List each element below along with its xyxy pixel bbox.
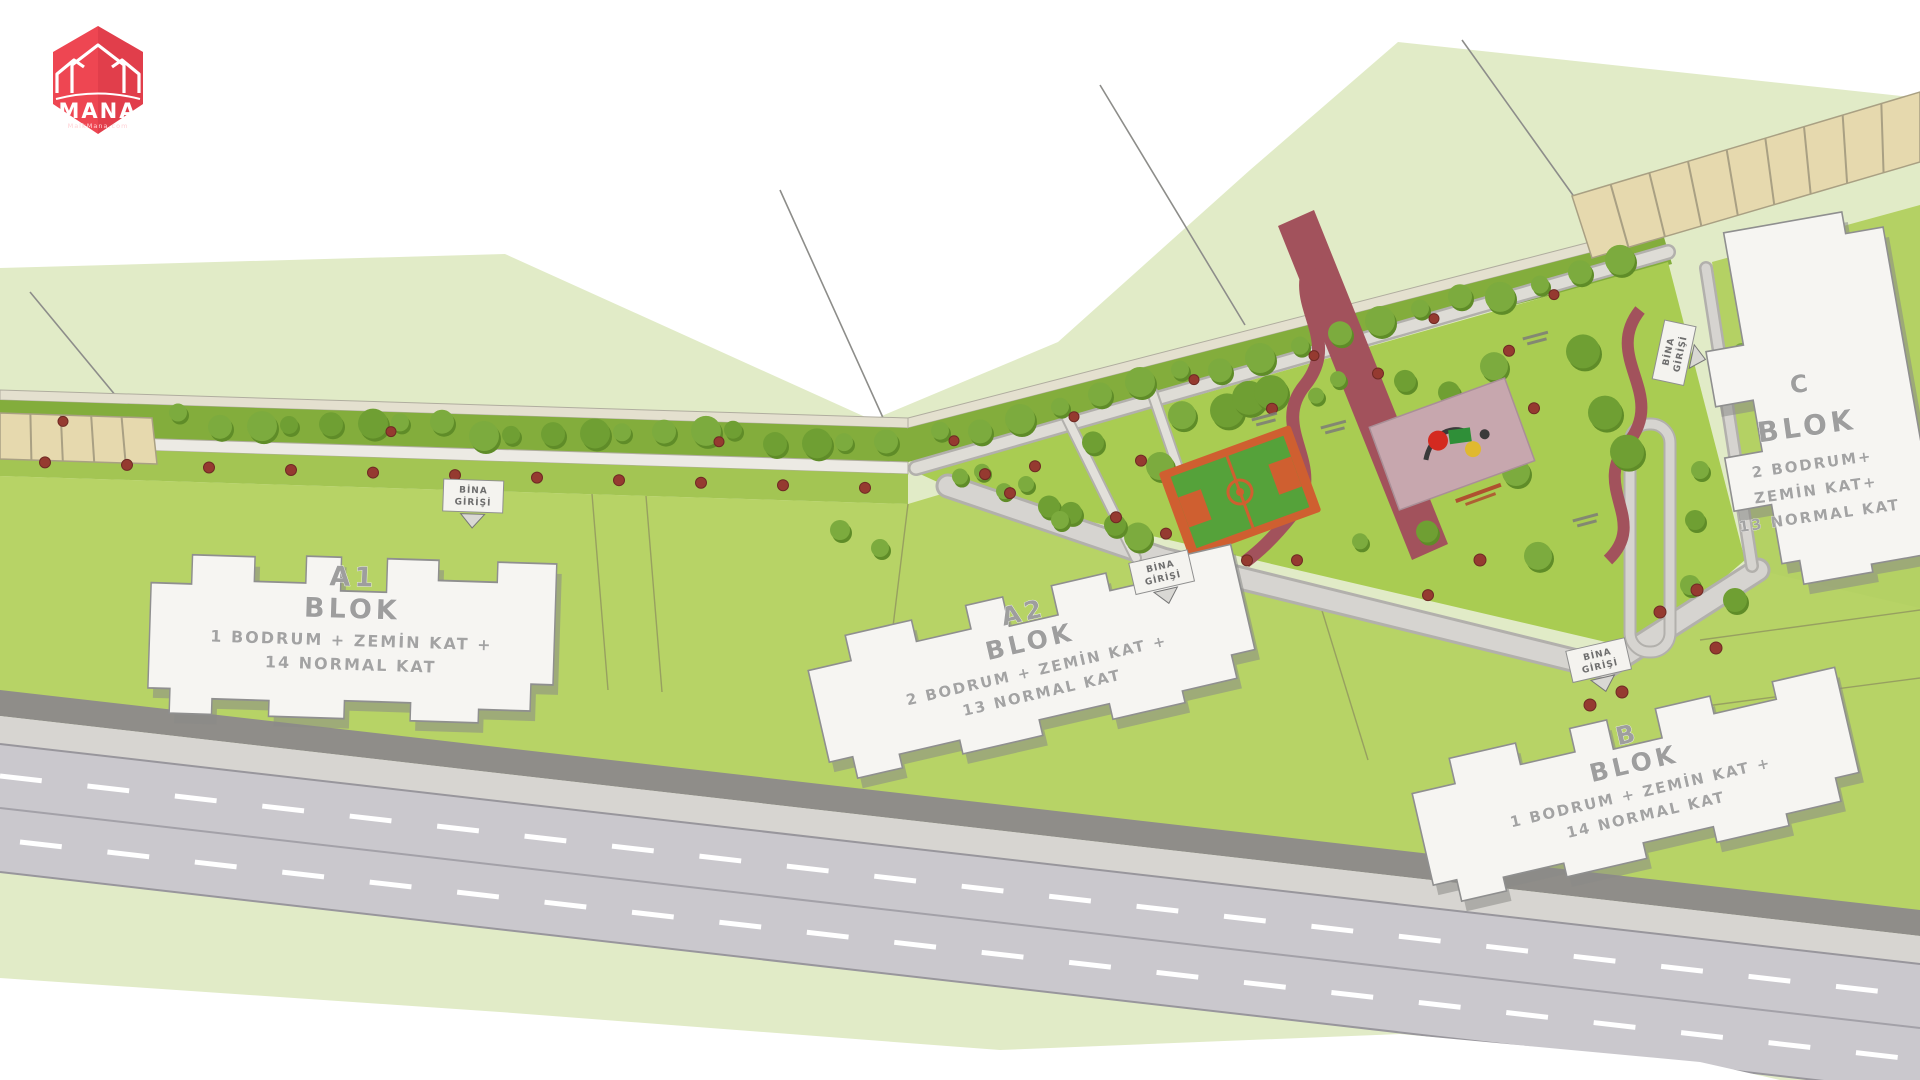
block-c-name: C bbox=[1788, 369, 1813, 400]
tree-icon bbox=[724, 421, 742, 439]
tree-icon bbox=[835, 433, 853, 451]
bush-icon bbox=[1504, 345, 1515, 356]
tree-icon bbox=[280, 416, 298, 434]
bush-icon bbox=[1584, 699, 1596, 711]
tree-icon bbox=[1330, 371, 1346, 387]
tree-icon bbox=[358, 409, 388, 439]
tree-icon bbox=[763, 432, 787, 456]
tree-icon bbox=[952, 469, 968, 485]
bush-icon bbox=[1691, 584, 1703, 596]
parking-lot-left bbox=[0, 413, 157, 464]
block-a1-name: A1 bbox=[329, 561, 378, 593]
bush-icon bbox=[1161, 528, 1172, 539]
tree-icon bbox=[1566, 334, 1600, 368]
bush-icon bbox=[1654, 606, 1666, 618]
bush-icon bbox=[386, 427, 396, 437]
bush-icon bbox=[1030, 461, 1041, 472]
tree-icon bbox=[1605, 245, 1635, 275]
bush-icon bbox=[286, 465, 297, 476]
bush-icon bbox=[1549, 290, 1559, 300]
bush-icon bbox=[368, 467, 379, 478]
tree-icon bbox=[1328, 321, 1352, 345]
tree-icon bbox=[1082, 431, 1104, 453]
tree-icon bbox=[1088, 382, 1112, 406]
tree-icon bbox=[1723, 588, 1747, 612]
site-plan: A1 BLOK 1 BODRUM + ZEMİN KAT + 14 NORMAL… bbox=[0, 0, 1920, 1080]
tree-icon bbox=[1208, 358, 1232, 382]
bush-icon bbox=[58, 416, 68, 426]
bush-icon bbox=[1529, 403, 1540, 414]
bush-icon bbox=[204, 462, 215, 473]
tree-icon bbox=[1531, 276, 1549, 294]
bush-icon bbox=[122, 459, 133, 470]
tree-icon bbox=[1691, 461, 1709, 479]
bush-icon bbox=[778, 480, 789, 491]
tree-icon bbox=[613, 423, 631, 441]
tree-icon bbox=[1125, 367, 1155, 397]
parking-stall-line bbox=[30, 414, 31, 460]
tree-icon bbox=[469, 421, 499, 451]
tree-icon bbox=[1051, 511, 1069, 529]
tree-icon bbox=[1018, 476, 1034, 492]
bush-icon bbox=[1292, 555, 1303, 566]
bush-icon bbox=[1429, 314, 1439, 324]
tree-icon bbox=[1524, 542, 1552, 570]
bush-icon bbox=[614, 475, 625, 486]
tree-icon bbox=[968, 419, 992, 443]
tree-icon bbox=[247, 411, 277, 441]
bush-icon bbox=[532, 472, 543, 483]
bush-icon bbox=[1069, 412, 1079, 422]
tree-icon bbox=[1610, 435, 1644, 469]
site-plan-screenshot: A1 BLOK 1 BODRUM + ZEMİN KAT + 14 NORMAL… bbox=[0, 0, 1920, 1080]
tree-icon bbox=[502, 426, 520, 444]
tree-icon bbox=[1308, 388, 1324, 404]
tree-icon bbox=[208, 415, 232, 439]
bush-icon bbox=[1373, 368, 1384, 379]
tree-icon bbox=[1480, 352, 1508, 380]
tree-icon bbox=[1568, 260, 1592, 284]
bush-icon bbox=[714, 437, 724, 447]
tree-icon bbox=[541, 422, 565, 446]
bush-icon bbox=[1005, 488, 1016, 499]
bush-icon bbox=[1111, 512, 1122, 523]
tree-icon bbox=[1352, 533, 1368, 549]
tree-icon bbox=[652, 420, 676, 444]
tree-icon bbox=[830, 520, 850, 540]
tree-icon bbox=[169, 404, 187, 422]
tree-icon bbox=[1365, 306, 1395, 336]
bush-icon bbox=[696, 477, 707, 488]
tree-icon bbox=[1005, 404, 1035, 434]
bush-icon bbox=[949, 436, 959, 446]
tree-icon bbox=[874, 429, 898, 453]
tree-icon bbox=[1124, 523, 1152, 551]
bush-icon bbox=[40, 457, 51, 468]
tree-icon bbox=[1485, 282, 1515, 312]
tree-icon bbox=[1448, 284, 1472, 308]
bush-icon bbox=[1710, 642, 1722, 654]
brand-site: MalkMana.com bbox=[68, 122, 129, 130]
bush-icon bbox=[1309, 351, 1319, 361]
bush-icon bbox=[980, 469, 991, 480]
bush-icon bbox=[860, 482, 871, 493]
bush-icon bbox=[1423, 590, 1434, 601]
tree-icon bbox=[802, 428, 832, 458]
tree-icon bbox=[319, 412, 343, 436]
tree-icon bbox=[871, 539, 889, 557]
tree-icon bbox=[580, 418, 610, 448]
tree-icon bbox=[430, 410, 454, 434]
tree-icon bbox=[1685, 510, 1705, 530]
tree-icon bbox=[1171, 361, 1189, 379]
tree-icon bbox=[1411, 300, 1429, 318]
tree-icon bbox=[1245, 343, 1275, 373]
tree-icon bbox=[1168, 401, 1196, 429]
entrance-text: GİRİŞİ bbox=[454, 496, 491, 508]
bush-icon bbox=[1189, 375, 1199, 385]
entrance-text: BİNA bbox=[459, 485, 488, 497]
tree-icon bbox=[1416, 521, 1438, 543]
block-a1-type: BLOK bbox=[304, 592, 402, 626]
tree-icon bbox=[1291, 337, 1309, 355]
bush-icon bbox=[1616, 686, 1628, 698]
bush-icon bbox=[1136, 455, 1147, 466]
tree-icon bbox=[931, 422, 949, 440]
tree-icon bbox=[1051, 398, 1069, 416]
brand-name: MANA bbox=[59, 99, 138, 123]
bush-icon bbox=[1242, 555, 1253, 566]
tree-icon bbox=[1588, 396, 1622, 430]
tree-icon bbox=[1394, 370, 1416, 392]
bush-icon bbox=[1474, 554, 1486, 566]
